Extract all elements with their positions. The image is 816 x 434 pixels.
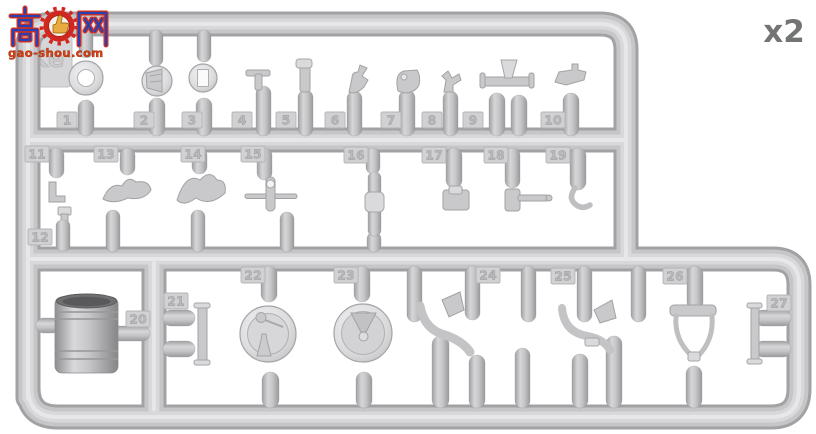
part-26-wishbone xyxy=(670,305,716,361)
part-tag-6: 6 xyxy=(325,112,345,128)
part-19-hook xyxy=(572,188,591,207)
part-tag-23: 23 xyxy=(334,267,358,283)
svg-text:22: 22 xyxy=(244,268,261,283)
part-tag-5: 5 xyxy=(276,112,296,128)
svg-text:2: 2 xyxy=(140,113,149,128)
svg-text:1: 1 xyxy=(63,113,72,128)
part-tag-14: 14 xyxy=(181,146,205,162)
svg-text:24: 24 xyxy=(479,268,497,283)
part-tag-18: 18 xyxy=(484,147,508,163)
svg-text:26: 26 xyxy=(666,269,684,284)
part-tag-11: 11 xyxy=(25,146,49,162)
part-tag-19: 19 xyxy=(546,147,570,163)
part-7-block xyxy=(397,70,420,93)
part-tag-2: 2 xyxy=(134,112,154,128)
part-18-arm xyxy=(505,189,552,211)
part-tag-1: 1 xyxy=(57,112,77,128)
part-tag-3: 3 xyxy=(182,112,202,128)
part-17-block xyxy=(443,186,469,210)
svg-text:4: 4 xyxy=(238,113,247,128)
part-12-pin xyxy=(56,207,71,251)
svg-text:16: 16 xyxy=(347,148,365,163)
part-14-fender xyxy=(177,175,225,204)
part-tag-15: 15 xyxy=(241,146,265,162)
svg-text:23: 23 xyxy=(337,268,354,283)
part-5-lever xyxy=(296,59,312,92)
svg-text:13: 13 xyxy=(97,147,114,162)
quantity-label: x2 xyxy=(763,14,805,50)
svg-text:25: 25 xyxy=(554,269,571,284)
svg-text:14: 14 xyxy=(184,147,202,162)
part-tag-16: 16 xyxy=(344,147,368,163)
part-tag-4: 4 xyxy=(232,112,252,128)
part-tag-8: 8 xyxy=(422,112,442,128)
part-tag-9: 9 xyxy=(463,112,483,128)
part-13-fender xyxy=(103,179,151,201)
part-tag-24: 24 xyxy=(476,267,500,283)
part-22-gauge-disc xyxy=(240,306,296,362)
sprue-drawing: Ke xyxy=(0,0,816,434)
part-tag-25: 25 xyxy=(551,268,575,284)
svg-text:18: 18 xyxy=(487,148,504,163)
svg-text:17: 17 xyxy=(425,148,442,163)
part-15-pin-crossbar xyxy=(245,177,297,211)
part-6-fork xyxy=(349,65,368,93)
part-tag-13: 13 xyxy=(94,146,118,162)
svg-text:20: 20 xyxy=(129,312,147,327)
svg-text:3: 3 xyxy=(188,113,197,128)
part-tag-20: 20 xyxy=(126,311,150,327)
svg-text:5: 5 xyxy=(282,113,291,128)
part-11-lbracket xyxy=(49,182,65,202)
svg-text:8: 8 xyxy=(428,113,437,128)
part-16-link xyxy=(365,172,384,236)
part-tag-17: 17 xyxy=(422,147,446,163)
svg-text:10: 10 xyxy=(544,113,562,128)
svg-text:12: 12 xyxy=(31,230,48,245)
svg-text:11: 11 xyxy=(28,147,45,162)
svg-text:21: 21 xyxy=(167,294,184,309)
svg-text:6: 6 xyxy=(331,113,340,128)
part-tag-7: 7 xyxy=(381,112,401,128)
part-20-barrel xyxy=(55,294,118,373)
part-tag-12: 12 xyxy=(28,229,52,245)
part-23-gauge-disc xyxy=(334,304,392,362)
watermark-url: gao-shou.com xyxy=(8,46,104,60)
svg-text:15: 15 xyxy=(244,147,261,162)
part-tag-10: 10 xyxy=(541,112,565,128)
part-tag-22: 22 xyxy=(241,267,265,283)
part-9-bar-funnel xyxy=(480,60,534,88)
part-10-lever xyxy=(555,64,586,85)
part-2-disc-wedge xyxy=(142,66,172,96)
sprue-photo: Ke xyxy=(0,0,816,434)
part-8-yoke xyxy=(442,71,461,92)
svg-text:19: 19 xyxy=(549,148,566,163)
part-tag-21: 21 xyxy=(164,293,188,309)
part-tag-27: 27 xyxy=(767,295,791,311)
part-21-strap xyxy=(194,303,210,365)
svg-text:9: 9 xyxy=(469,113,478,128)
part-tag-26: 26 xyxy=(663,268,687,284)
part-3-disc-slot xyxy=(189,64,217,92)
svg-text:7: 7 xyxy=(387,113,396,128)
part-1-ring xyxy=(69,61,103,95)
svg-text:27: 27 xyxy=(770,296,787,311)
